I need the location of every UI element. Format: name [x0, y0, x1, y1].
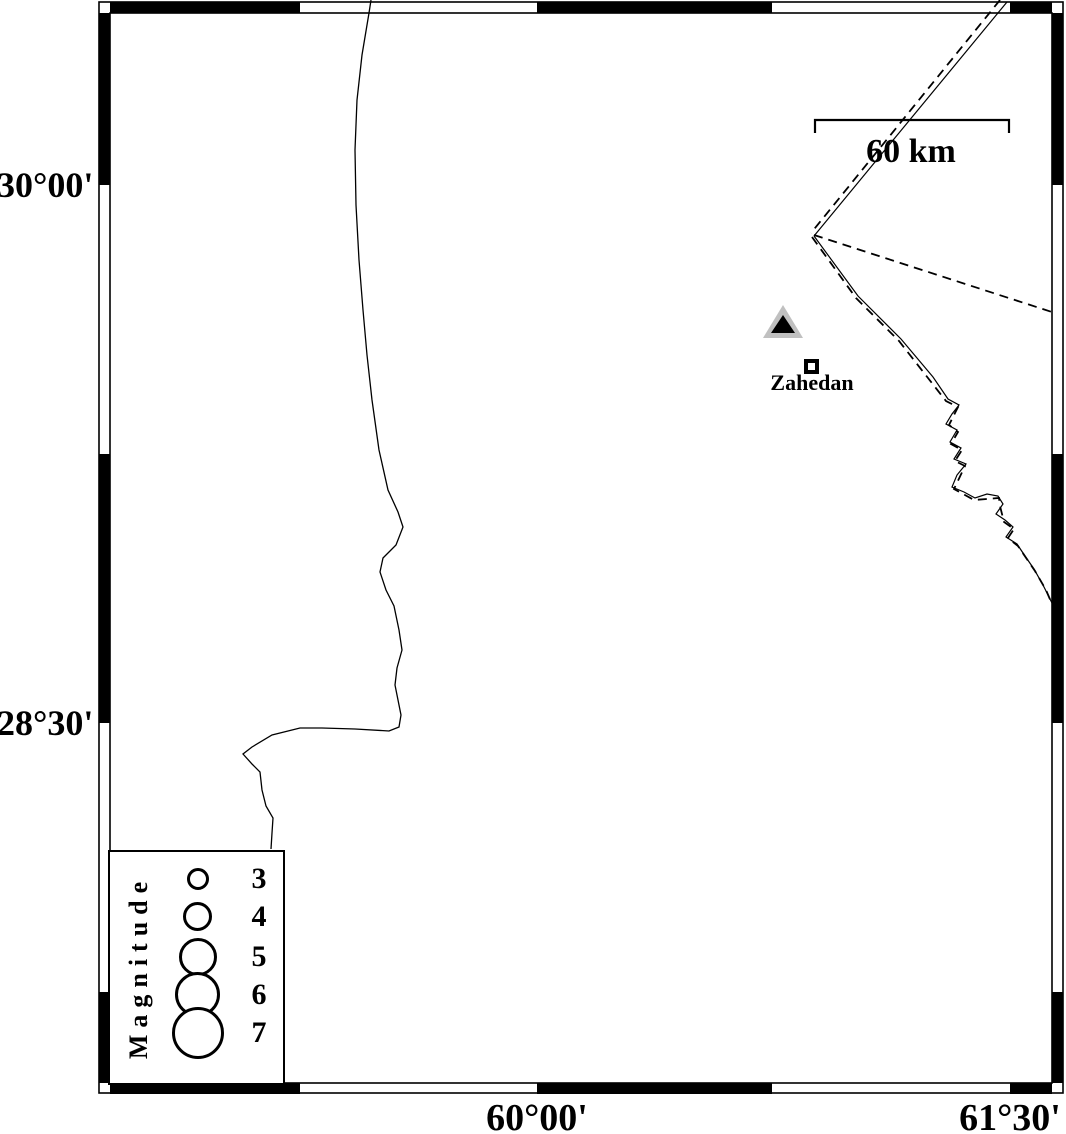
frame-tick-segment	[1052, 13, 1063, 185]
frame-tick-segment	[1052, 992, 1063, 1083]
frame-tick-segment	[99, 13, 110, 185]
fault-line-southeast-dashed	[812, 237, 1058, 618]
frame-tick-segment	[110, 2, 300, 13]
legend-label-m6: 6	[229, 978, 289, 1012]
city-label: Zahedan	[732, 370, 892, 396]
frame-tick-segment	[1010, 1083, 1052, 1094]
lat-label-28-30: 28°30'	[0, 702, 89, 744]
legend-label-m3: 3	[229, 862, 289, 896]
coastline	[243, 0, 403, 849]
legend-circle-m3	[187, 868, 209, 890]
legend-label-m5: 5	[229, 940, 289, 974]
legend-label-m4: 4	[229, 900, 289, 934]
lon-label-61-30: 61°30'	[910, 1096, 1066, 1134]
border-dashed-east	[814, 235, 1055, 313]
map-page: 30°00' 28°30' 60°00' 61°30' 60 km Zaheda…	[0, 0, 1066, 1134]
frame-tick-segment	[537, 2, 772, 13]
frame-tick-segment	[1052, 454, 1063, 723]
frame-tick-segment	[537, 1083, 772, 1094]
legend-title: Magnitude	[124, 875, 154, 1059]
frame-tick-segment	[1010, 2, 1052, 13]
legend-circle-m5	[179, 938, 217, 976]
lon-label-60-00: 60°00'	[437, 1096, 637, 1134]
fault-line-southeast-solid	[814, 236, 1058, 616]
frame-tick-segment	[99, 454, 110, 723]
scale-bar-label: 60 km	[811, 133, 1011, 171]
scale-bar-bracket	[815, 120, 1009, 133]
legend-circle-m4	[183, 902, 212, 931]
fault-line-north-dashed	[811, 0, 1000, 233]
legend-label-m7: 7	[229, 1016, 289, 1050]
lat-label-30-00: 30°00'	[0, 164, 89, 206]
legend-circle-m7	[172, 1007, 224, 1059]
